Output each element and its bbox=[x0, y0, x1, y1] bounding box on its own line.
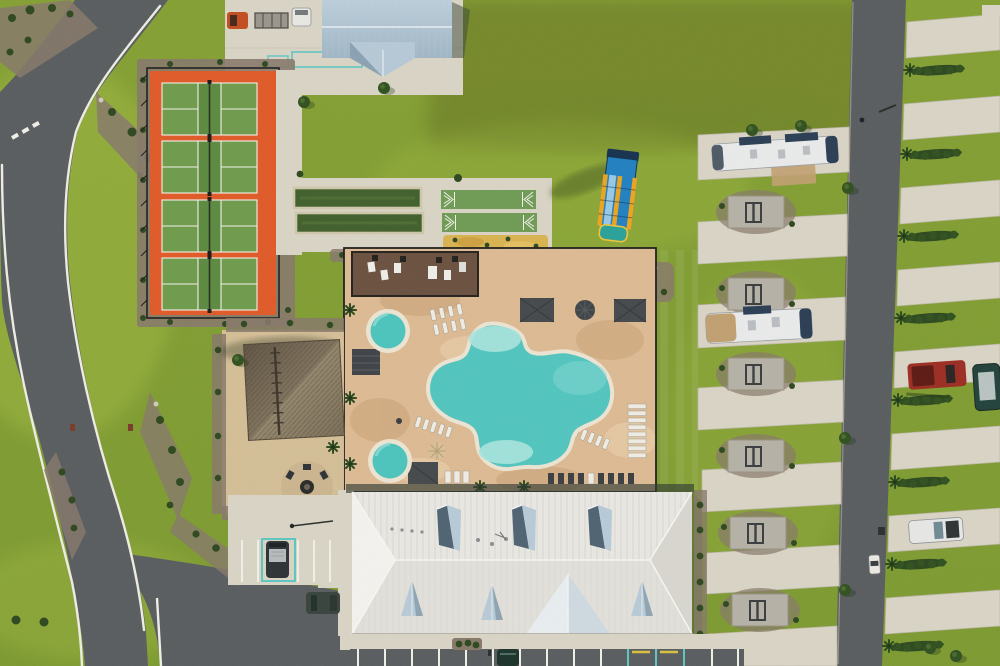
scene-canvas bbox=[0, 0, 1000, 666]
photo-grain bbox=[0, 0, 1000, 666]
aerial-photo-rv-resort bbox=[0, 0, 1000, 666]
